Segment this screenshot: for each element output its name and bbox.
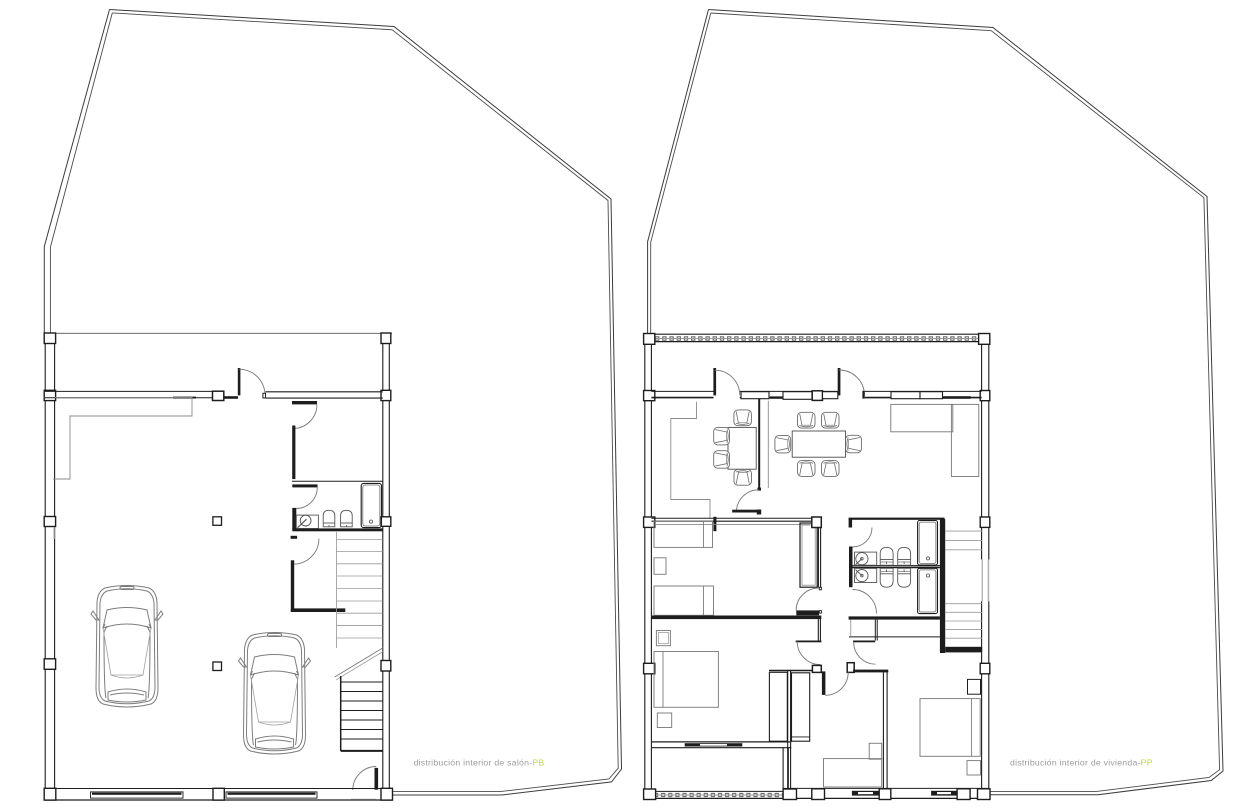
svg-text:distribución interior de vivie: distribución interior de vivienda-PP [1010,758,1153,768]
svg-text:distribución interior de salón: distribución interior de salón-PB [414,758,545,768]
